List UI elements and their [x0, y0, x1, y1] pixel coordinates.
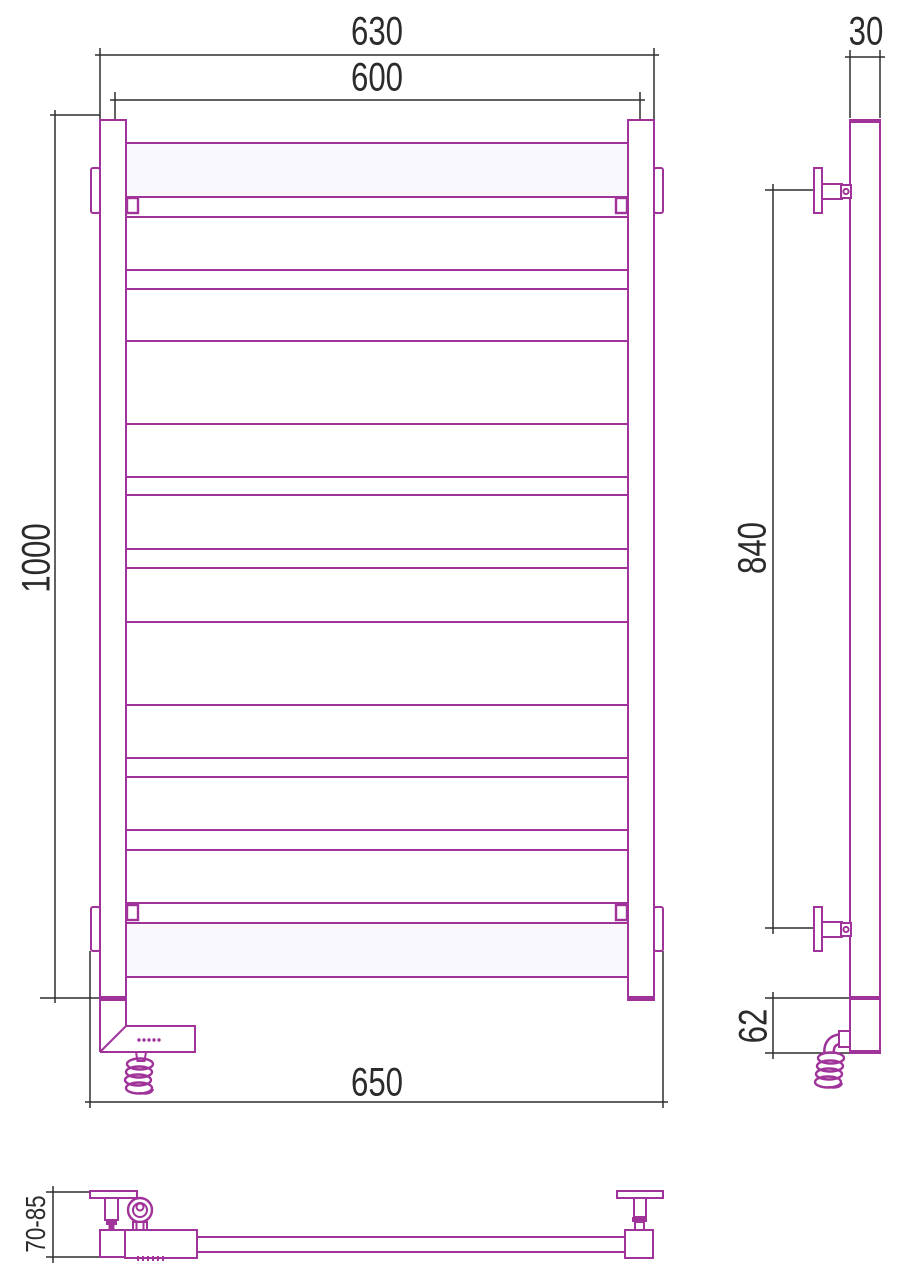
dim-label-heater-section: 62 [731, 1009, 776, 1044]
front-bottom-shelf-bar [126, 903, 628, 923]
heater-vent-dots [137, 1038, 160, 1041]
bracket-stem [822, 184, 842, 199]
slat [126, 217, 628, 270]
cable-connector [839, 1031, 850, 1047]
side-post [850, 120, 880, 998]
front-left-post-cap [99, 996, 127, 1001]
bottom-view: 70-85 [21, 1186, 663, 1263]
top-view-right-post [625, 1230, 653, 1258]
side-view: 30 840 62 [730, 9, 885, 1088]
dim-label-profile-depth: 30 [849, 9, 884, 54]
dim-label-bracket-span: 650 [351, 1060, 403, 1105]
top-view-left-bracket-stem [105, 1198, 118, 1220]
front-bracket-top-left [91, 168, 100, 213]
front-slats [126, 217, 628, 903]
side-heater-separator [850, 996, 880, 1000]
slat [126, 424, 628, 477]
front-product [91, 120, 663, 1094]
front-right-post-cap [627, 996, 655, 1001]
slat [126, 777, 628, 830]
side-bracket-top [814, 168, 851, 213]
side-product [814, 120, 880, 1088]
front-top-rail [126, 143, 628, 197]
bottom-dimension-labels: 70-85 [21, 1195, 52, 1252]
top-view-left-bracket-collar [106, 1220, 117, 1225]
slat [126, 495, 628, 549]
slat [126, 850, 628, 903]
dim-line-profile-depth [845, 50, 885, 118]
towel-rail-drawing: 630 600 1000 650 [0, 0, 903, 1280]
dim-label-rail-width: 600 [351, 55, 403, 100]
bracket-stem [822, 922, 842, 937]
front-view: 630 600 1000 650 [14, 9, 668, 1108]
side-heater-bottom-cap [850, 1050, 880, 1053]
front-cable-coil [125, 1052, 153, 1094]
front-bracket-top-right [654, 168, 663, 213]
top-view-right-bracket-stem [634, 1198, 646, 1217]
dim-label-overall-width: 630 [351, 9, 403, 54]
side-post-top-cap [850, 120, 880, 123]
top-view-right-wall-plate [617, 1191, 663, 1198]
side-heater-section [850, 998, 880, 1053]
top-view-shelf-hook-knob [128, 1198, 152, 1230]
front-bracket-bottom-left [91, 907, 100, 951]
top-view-right-bracket-foot [635, 1222, 644, 1230]
dim-line-heater-section [765, 992, 850, 1059]
top-view-left-wall-plate [90, 1191, 137, 1198]
dim-label-wall-clearance: 70-85 [21, 1195, 52, 1252]
front-top-shelf-bar [126, 197, 628, 217]
top-view-heater-box [125, 1230, 197, 1258]
bracket-flange [814, 907, 822, 951]
bottom-product [90, 1191, 663, 1261]
slat [126, 568, 628, 622]
top-view-rail-bar [197, 1237, 625, 1252]
dim-label-bracket-vertical-span: 840 [730, 522, 775, 574]
dim-label-overall-height: 1000 [14, 523, 59, 592]
technical-drawing-page: 630 600 1000 650 [0, 0, 903, 1280]
top-view-left-post [100, 1230, 125, 1257]
side-bracket-bottom [814, 907, 851, 951]
side-cable [815, 1031, 850, 1088]
front-bottom-rail [126, 923, 628, 977]
front-left-post [100, 120, 126, 997]
bracket-flange [814, 168, 822, 213]
slat [126, 289, 628, 341]
front-heater-box [100, 1001, 195, 1052]
slat [126, 705, 628, 758]
front-bracket-bottom-right [654, 907, 663, 951]
front-right-post [628, 120, 654, 997]
